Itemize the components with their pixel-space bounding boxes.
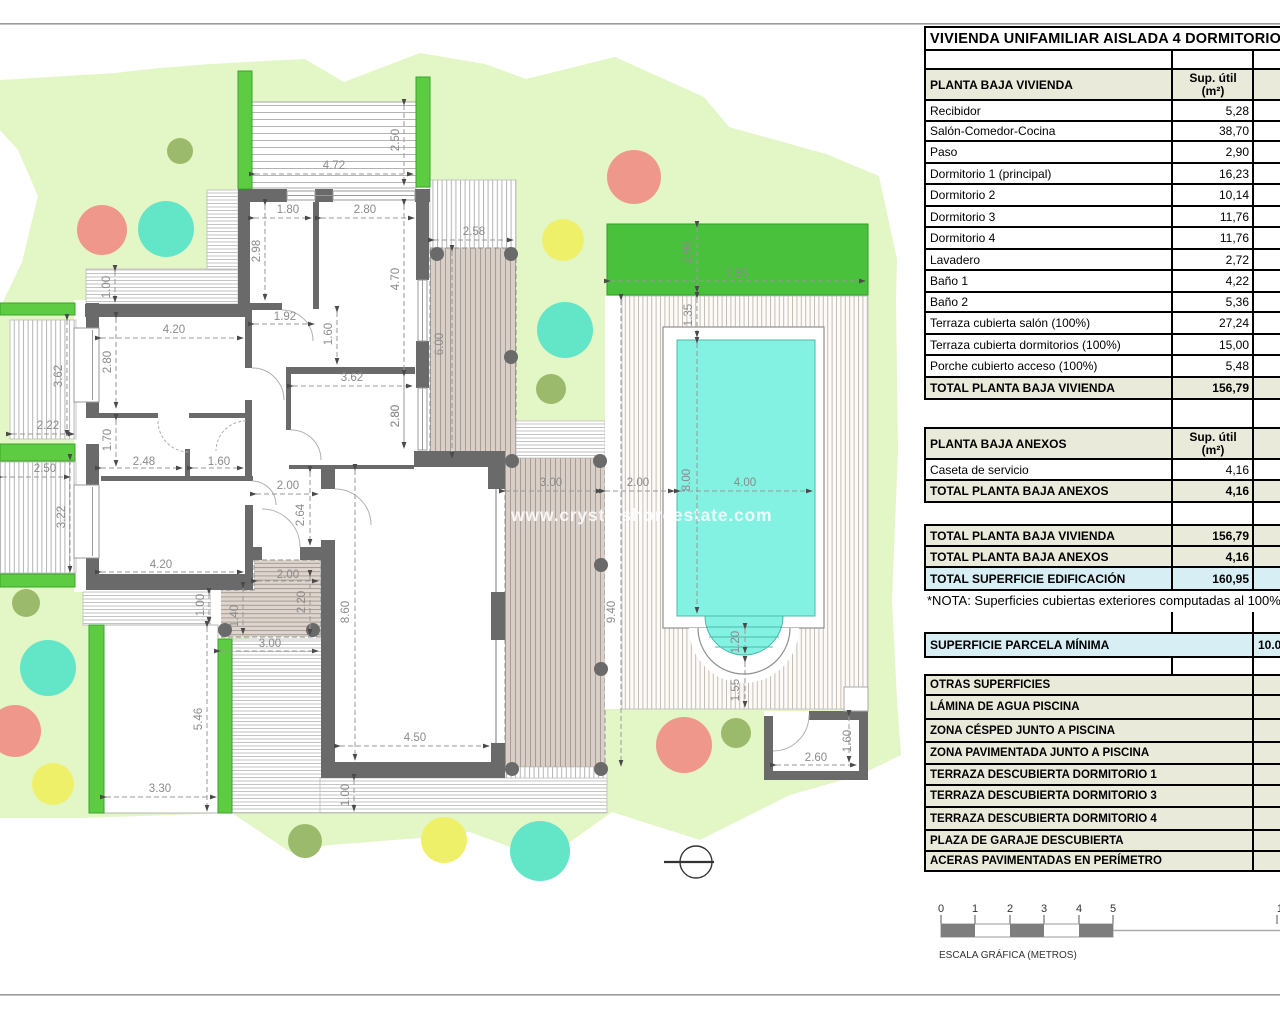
svg-text:2.48: 2.48	[133, 456, 155, 468]
svg-text:2.22: 2.22	[37, 420, 59, 432]
svg-text:2.80: 2.80	[390, 405, 402, 427]
svg-text:2.64: 2.64	[295, 503, 307, 526]
svg-text:1.00: 1.00	[340, 784, 352, 806]
svg-text:1.92: 1.92	[274, 311, 296, 323]
svg-text:9.40: 9.40	[606, 601, 618, 623]
svg-text:3.00: 3.00	[259, 638, 281, 650]
svg-text:1.55: 1.55	[730, 679, 742, 701]
svg-text:2.00: 2.00	[682, 241, 694, 263]
svg-text:1.60: 1.60	[842, 730, 854, 752]
svg-text:4.50: 4.50	[404, 732, 426, 744]
svg-text:4.00: 4.00	[734, 477, 756, 489]
svg-text:4.72: 4.72	[323, 160, 345, 172]
svg-text:8.00: 8.00	[681, 469, 693, 491]
svg-text:5: 5	[1110, 903, 1116, 915]
svg-text:6.00: 6.00	[434, 333, 446, 355]
svg-text:3.22: 3.22	[56, 506, 68, 528]
svg-text:2.50: 2.50	[34, 463, 56, 475]
svg-text:1.80: 1.80	[277, 204, 299, 216]
svg-text:2.80: 2.80	[354, 204, 376, 216]
svg-text:1.00: 1.00	[195, 594, 207, 616]
svg-text:1.70: 1.70	[102, 429, 114, 451]
svg-text:4: 4	[1076, 903, 1082, 915]
svg-text:2.00: 2.00	[277, 480, 299, 492]
svg-text:3.30: 3.30	[149, 783, 171, 795]
svg-text:3.62: 3.62	[341, 372, 363, 384]
svg-text:5.46: 5.46	[193, 708, 205, 730]
svg-text:4.70: 4.70	[390, 268, 402, 290]
svg-text:2.60: 2.60	[805, 752, 827, 764]
svg-text:1.60: 1.60	[208, 456, 230, 468]
svg-text:2.00: 2.00	[627, 477, 649, 489]
svg-text:www.crystalshoreestate.com: www.crystalshoreestate.com	[510, 505, 772, 525]
svg-text:1: 1	[972, 903, 978, 915]
svg-text:ESCALA GRÁFICA (METROS): ESCALA GRÁFICA (METROS)	[939, 948, 1077, 961]
svg-text:1.20: 1.20	[730, 631, 742, 653]
svg-text:2.20: 2.20	[296, 591, 308, 613]
svg-text:1.40: 1.40	[229, 605, 241, 627]
svg-text:1.35: 1.35	[683, 304, 695, 326]
svg-text:7.55: 7.55	[726, 268, 748, 280]
svg-text:2: 2	[1007, 903, 1013, 915]
svg-text:3.62: 3.62	[53, 365, 65, 387]
svg-text:1.60: 1.60	[323, 323, 335, 345]
svg-text:3: 3	[1041, 903, 1047, 915]
svg-text:2.50: 2.50	[390, 129, 402, 151]
svg-text:2.58: 2.58	[463, 226, 485, 238]
svg-text:1.00: 1.00	[101, 276, 113, 298]
svg-text:4.20: 4.20	[150, 559, 172, 571]
svg-text:0: 0	[938, 903, 944, 915]
svg-text:4.20: 4.20	[163, 324, 185, 336]
svg-text:2.98: 2.98	[251, 240, 263, 262]
svg-text:2.80: 2.80	[102, 351, 114, 373]
svg-text:3.00: 3.00	[540, 477, 562, 489]
svg-text:8.60: 8.60	[340, 601, 352, 623]
svg-text:2.00: 2.00	[277, 569, 299, 581]
